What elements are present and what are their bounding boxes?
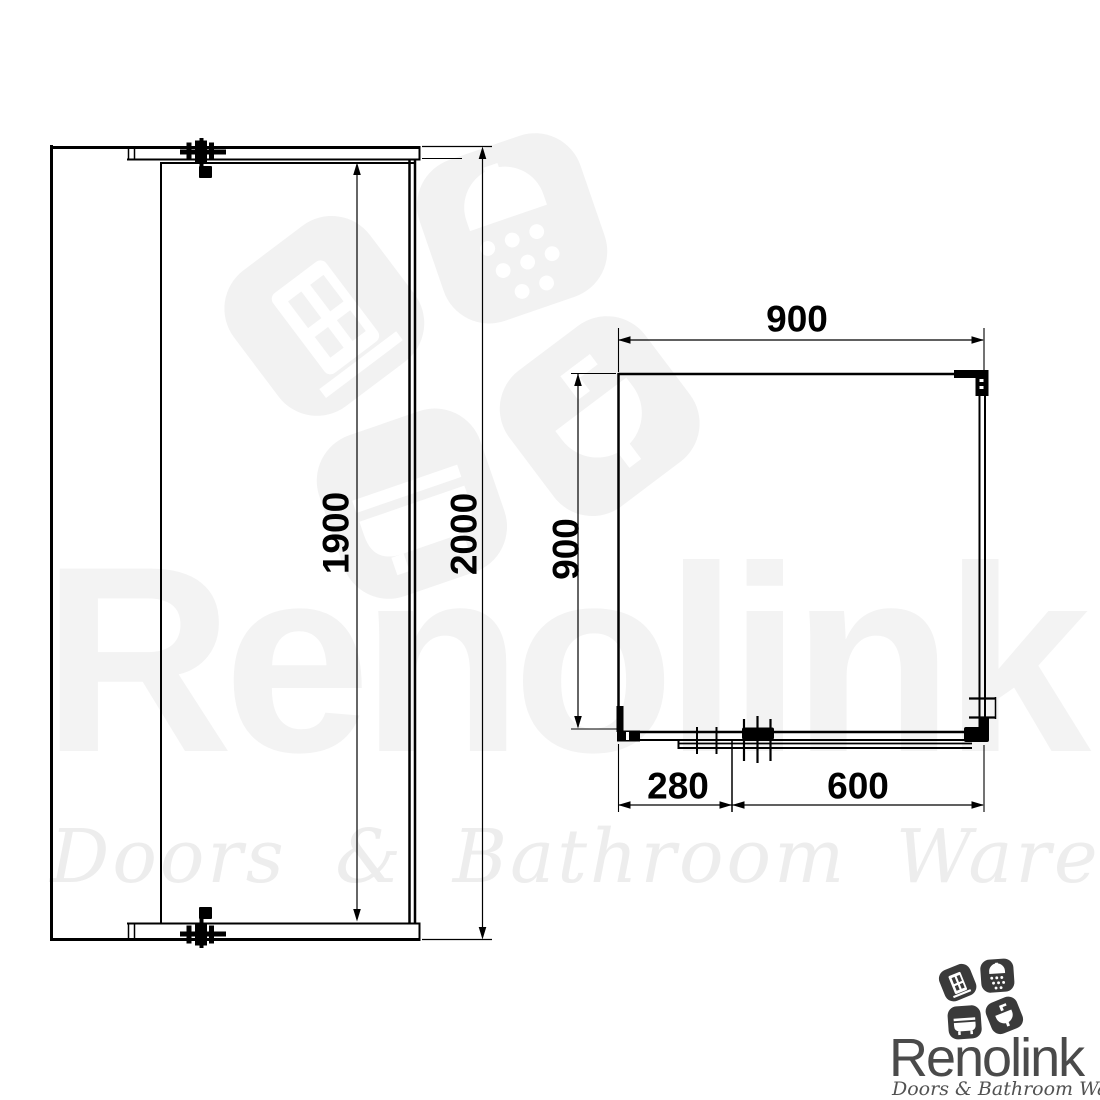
elevation-glass-height-label: 1900 — [318, 492, 355, 574]
plan-fixed-panel-label: 280 — [647, 768, 709, 805]
logo-brand-text: Renolink — [889, 1031, 1083, 1085]
top-right-wall-profile — [954, 370, 989, 396]
bottom-wall-clamp — [180, 907, 226, 948]
plan-depth-label: 900 — [548, 518, 585, 580]
product-dimension-diagram: Renolink Doors & Bathroom Warehouse — [0, 0, 1100, 1100]
elevation-total-height-label: 2000 — [446, 493, 483, 575]
plan-door-label: 600 — [827, 768, 889, 805]
logo-tagline-text: Doors & Bathroom Warehouse — [892, 1080, 1100, 1099]
top-wall-clamp — [180, 138, 226, 178]
bottom-left-wall-profile — [617, 706, 641, 742]
plan-width-label: 900 — [766, 301, 828, 338]
